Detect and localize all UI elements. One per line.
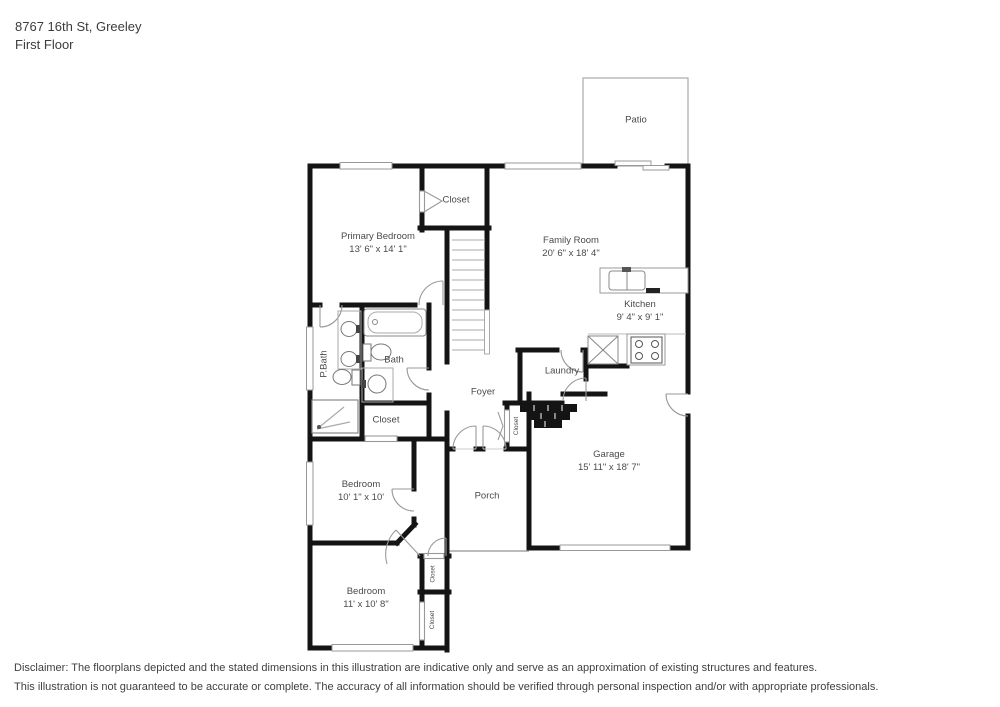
room-dims-bedroom-bottom: 11' x 10' 8" <box>343 598 388 611</box>
floor-plan: Patio Closet Primary Bedroom 13' 6" x 14… <box>0 0 1000 707</box>
room-label-kitchen: Kitchen 9' 4" x 9' 1" <box>617 298 664 324</box>
floor-plan-drawing <box>0 0 1000 707</box>
dishwasher <box>646 288 660 293</box>
room-label-closet-hall: Closet <box>373 414 400 427</box>
pbath-sinks <box>341 322 360 367</box>
room-label-closet-foyer: Closet <box>513 417 521 435</box>
room-label-bath: Bath <box>384 354 404 367</box>
room-label-closet-top: Closet <box>443 194 470 207</box>
room-label-pbath: P.Bath <box>318 350 331 377</box>
bath-sink <box>362 368 393 402</box>
refrigerator <box>588 336 618 364</box>
room-label-patio: Patio <box>625 114 647 127</box>
shower <box>312 400 358 433</box>
room-label-foyer: Foyer <box>471 386 495 399</box>
window-primary-bedroom <box>340 163 392 170</box>
disclaimer-line-2: This illustration is not guaranteed to b… <box>14 681 878 693</box>
sliding-door-patio-2 <box>643 166 669 171</box>
disclaimer-line-1: Disclaimer: The floorplans depicted and … <box>14 662 817 674</box>
stairs <box>452 240 490 354</box>
floor-plan-page: { "header": { "address": "8767 16th St, … <box>0 0 1000 707</box>
room-dims-primary-bedroom: 13' 6" x 14' 1" <box>341 243 415 256</box>
window-bedroom-bottom <box>332 645 413 652</box>
room-label-closet-bottom: Closet <box>429 611 437 629</box>
window-pbath <box>307 327 314 390</box>
sliding-door-patio <box>615 161 651 166</box>
room-label-bedroom-middle: Bedroom 10' 1" x 10' <box>338 478 384 504</box>
room-label-bedroom-bottom: Bedroom 11' x 10' 8" <box>343 585 388 611</box>
room-label-garage: Garage 15' 11" x 18' 7" <box>578 448 640 474</box>
room-label-closet-small: Closet <box>431 565 438 582</box>
room-label-primary-bedroom: Primary Bedroom 13' 6" x 14' 1" <box>341 230 415 256</box>
room-label-laundry: Laundry <box>545 365 579 378</box>
pbath-toilet <box>333 370 360 386</box>
bathtub <box>364 309 426 336</box>
window-bedroom-middle <box>307 462 314 525</box>
room-dims-bedroom-middle: 10' 1" x 10' <box>338 491 384 504</box>
window-family-room <box>505 163 581 169</box>
room-dims-family-room: 20' 6" x 18' 4" <box>542 247 599 260</box>
garage-door <box>560 545 670 551</box>
room-dims-kitchen: 9' 4" x 9' 1" <box>617 311 664 324</box>
room-label-porch: Porch <box>475 490 500 503</box>
stove <box>631 337 662 363</box>
room-dims-garage: 15' 11" x 18' 7" <box>578 461 640 474</box>
room-label-family-room: Family Room 20' 6" x 18' 4" <box>542 234 599 260</box>
